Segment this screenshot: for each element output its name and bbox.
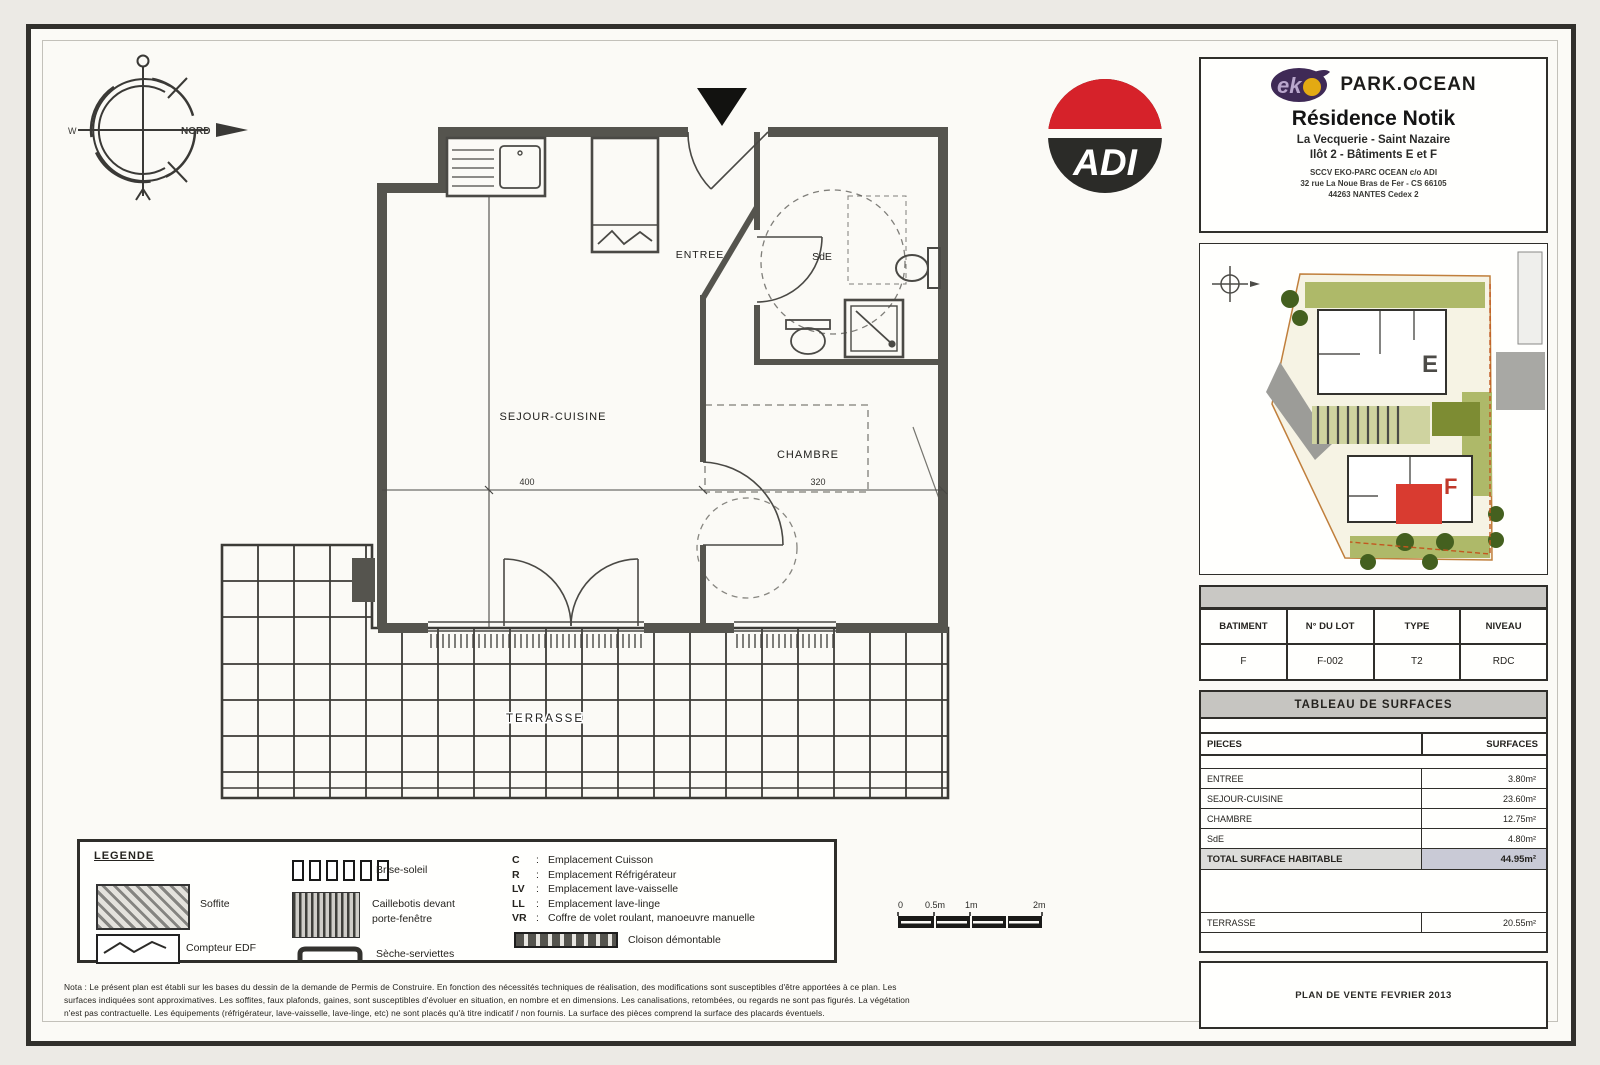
legend-title: LEGENDE <box>94 850 154 862</box>
lot-value-type: T2 <box>1375 645 1462 680</box>
lot-header-type: TYPE <box>1375 610 1462 645</box>
total-label: TOTAL SURFACE HABITABLE <box>1201 849 1421 869</box>
building-f-label: F <box>1444 474 1457 499</box>
scale-05: 0.5m <box>925 900 945 910</box>
row-value: 4.80m² <box>1421 829 1546 848</box>
row-value: 12.75m² <box>1421 809 1546 828</box>
abbrev-sep: : <box>536 853 548 868</box>
project-name: PARK.OCEAN <box>1340 74 1476 96</box>
abbrev-row: R:Emplacement Réfrigérateur <box>512 868 755 883</box>
developer-address: SCCV EKO-PARC OCEAN c/o ADI 32 rue La No… <box>1201 167 1546 201</box>
abbrev-row: C:Emplacement Cuisson <box>512 853 755 868</box>
row-piece: CHAMBRE <box>1201 809 1421 828</box>
abbrev-row: LL:Emplacement lave-linge <box>512 897 755 912</box>
cloison-swatch <box>514 932 618 948</box>
caillebotis-swatch <box>292 892 360 938</box>
lot-table-value-row: F F-002 T2 RDC <box>1201 645 1546 680</box>
caillebotis-label: Caillebotis devant porte-fenêtre <box>372 897 455 927</box>
terrasse-label: TERRASSE <box>1201 913 1421 932</box>
building-e-label: E <box>1422 351 1438 378</box>
abbrev-sep: : <box>536 868 548 883</box>
surfaces-header-row: PIECES SURFACES <box>1201 732 1546 756</box>
building-e: E <box>1318 310 1446 394</box>
stamp-box: PLAN DE VENTE FEVRIER 2013 <box>1199 961 1548 1029</box>
brise-soleil-label: Brise-soleil <box>376 864 427 876</box>
stamp-text: PLAN DE VENTE FEVRIER 2013 <box>1295 990 1452 1001</box>
address-line-1: SCCV EKO-PARC OCEAN c/o ADI <box>1201 167 1546 178</box>
row-piece: ENTREE <box>1201 769 1421 788</box>
notes-line-1: Nota : Le présent plan est établi sur le… <box>64 981 1172 994</box>
scale-bar: 0 0.5m 1m 2m <box>893 896 1053 940</box>
scanned-plan-page: W NORD ADI TERRASSE <box>0 0 1600 1065</box>
abbrev-label: Coffre de volet roulant, manoeuvre manue… <box>548 912 755 924</box>
table-row: SEJOUR-CUISINE 23.60m² <box>1201 789 1546 809</box>
title-block: ek PARK.OCEAN Résidence Notik La Vecquer… <box>1199 57 1548 233</box>
surfaces-rows: ENTREE 3.80m² SEJOUR-CUISINE 23.60m² CHA… <box>1201 768 1546 933</box>
abbrev-sep: : <box>536 897 548 912</box>
seche-serviettes-label: Sèche-serviettes <box>376 948 454 960</box>
row-piece: SEJOUR-CUISINE <box>1201 789 1421 808</box>
row-piece: SdE <box>1201 829 1421 848</box>
abbrev-row: LV:Emplacement lave-vaisselle <box>512 882 755 897</box>
notes-block: Nota : Le présent plan est établi sur le… <box>64 981 1172 1020</box>
site-plan-svg: E F <box>1200 244 1545 572</box>
surfaces-title: TABLEAU DE SURFACES <box>1201 692 1546 719</box>
seche-serviettes-icon <box>294 946 366 967</box>
terrasse-value: 20.55m² <box>1421 913 1546 932</box>
site-plan-box: E F <box>1199 243 1548 575</box>
lot-value-niveau: RDC <box>1461 645 1546 680</box>
lot-header-numdulot: N° DU LOT <box>1288 610 1375 645</box>
abbrev-key: C <box>512 853 536 868</box>
scale-1: 1m <box>965 900 978 910</box>
brise-soleil-icon <box>292 860 389 881</box>
abbrev-key: LL <box>512 897 536 912</box>
building-f: F <box>1348 456 1472 524</box>
abbrev-key: R <box>512 868 536 883</box>
caillebotis-label-line2: porte-fenêtre <box>372 912 455 927</box>
lot-value-numdulot: F-002 <box>1288 645 1375 680</box>
col-surfaces: SURFACES <box>1421 734 1546 754</box>
eko-letters: ek <box>1277 73 1303 98</box>
abbrev-row: VR:Coffre de volet roulant, manoeuvre ma… <box>512 911 755 926</box>
scale-0: 0 <box>898 900 903 910</box>
address-line-2: 32 rue La Noue Bras de Fer - CS 66105 <box>1201 178 1546 189</box>
notes-line-2: surfaces indiquées sont approximatives. … <box>64 994 1172 1007</box>
abbrev-key: VR <box>512 911 536 926</box>
edf-zigzag-icon <box>98 936 174 958</box>
notes-line-3: n'est pas contractuelle. Les équipements… <box>64 1007 1172 1020</box>
edf-meter-swatch <box>96 934 180 964</box>
abbrev-sep: : <box>536 911 548 926</box>
abbrev-label: Emplacement Cuisson <box>548 854 653 866</box>
lot-table-header-row: BATIMENT N° DU LOT TYPE NIVEAU <box>1201 610 1546 645</box>
highlighted-unit <box>1396 484 1442 524</box>
table-row: CHAMBRE 12.75m² <box>1201 809 1546 829</box>
site-compass <box>1212 266 1260 302</box>
abbrev-sep: : <box>536 882 548 897</box>
soffite-label: Soffite <box>200 898 230 910</box>
total-row: TOTAL SURFACE HABITABLE 44.95m² <box>1201 849 1546 870</box>
legend-box: LEGENDE Soffite Compteur EDF Brise-solei… <box>77 839 837 963</box>
eko-logo: ek <box>1270 66 1332 104</box>
location-line-1: La Vecquerie - Saint Nazaire <box>1201 134 1546 146</box>
abbrev-label: Emplacement lave-vaisselle <box>548 883 678 895</box>
table-row: ENTREE 3.80m² <box>1201 769 1546 789</box>
location-line-2: Ilôt 2 - Bâtiments E et F <box>1201 149 1546 161</box>
col-pieces: PIECES <box>1201 739 1421 750</box>
row-value: 23.60m² <box>1421 789 1546 808</box>
abbrev-label: Emplacement lave-linge <box>548 898 660 910</box>
lot-header-batiment: BATIMENT <box>1201 610 1288 645</box>
scale-2: 2m <box>1033 900 1046 910</box>
abbrev-key: LV <box>512 882 536 897</box>
caillebotis-label-line1: Caillebotis devant <box>372 897 455 912</box>
soffite-swatch <box>96 884 190 930</box>
abbrev-label: Emplacement Réfrigérateur <box>548 869 676 881</box>
edf-meter-label: Compteur EDF <box>186 942 256 954</box>
lot-value-batiment: F <box>1201 645 1288 680</box>
address-line-3: 44263 NANTES Cedex 2 <box>1201 189 1546 200</box>
cloison-label: Cloison démontable <box>628 934 721 946</box>
table-row: SdE 4.80m² <box>1201 829 1546 849</box>
total-value: 44.95m² <box>1421 849 1546 869</box>
lot-band <box>1199 585 1548 609</box>
cloison-row: Cloison démontable <box>514 932 721 948</box>
terrasse-row: TERRASSE 20.55m² <box>1201 912 1546 933</box>
surfaces-table: TABLEAU DE SURFACES PIECES SURFACES ENTR… <box>1199 690 1548 953</box>
lot-header-niveau: NIVEAU <box>1461 610 1546 645</box>
lot-table: BATIMENT N° DU LOT TYPE NIVEAU F F-002 T… <box>1199 608 1548 681</box>
row-value: 3.80m² <box>1421 769 1546 788</box>
residence-name: Résidence Notik <box>1201 107 1546 131</box>
legend-abbreviations: C:Emplacement Cuisson R:Emplacement Réfr… <box>512 853 755 926</box>
